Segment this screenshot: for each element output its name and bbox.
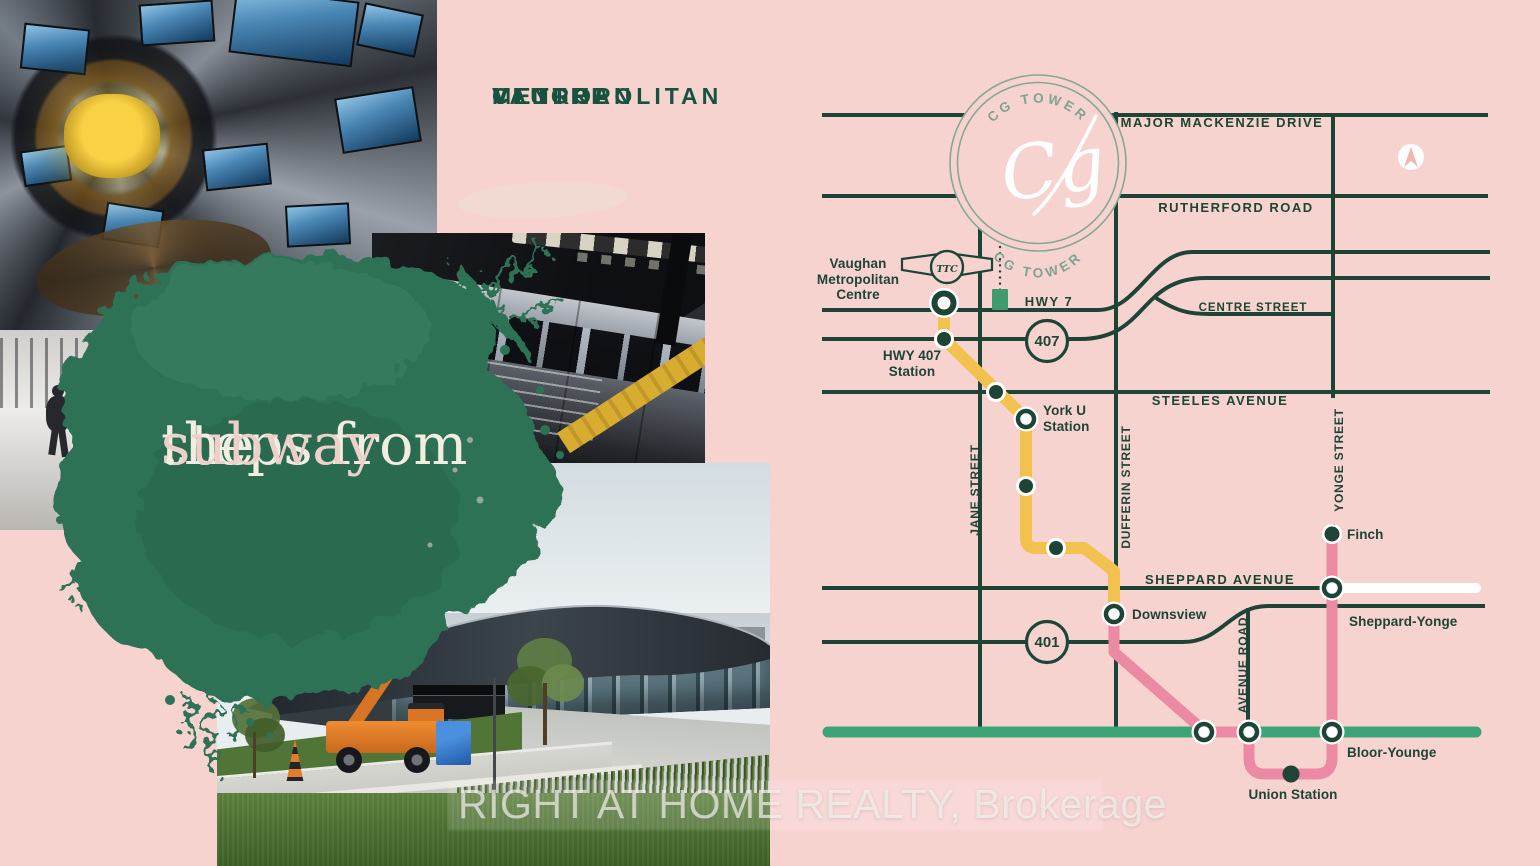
label-bloor-younge: Bloor-Younge bbox=[1347, 745, 1437, 760]
label-hwy7: HWY 7 bbox=[1025, 294, 1073, 309]
station-hwy407-dot bbox=[937, 332, 951, 346]
road-lines bbox=[822, 112, 1490, 733]
brokerage-watermark: RIGHT AT HOME REALTY, Brokerage bbox=[458, 781, 1167, 828]
station-vmc-ring bbox=[935, 294, 954, 313]
badge-monogram-script: Cg bbox=[995, 119, 1110, 219]
north-arrow-icon bbox=[1398, 144, 1424, 170]
station-dot bbox=[1049, 541, 1063, 555]
label-finch: Finch bbox=[1347, 527, 1384, 542]
subway-line-yonge-university-pink bbox=[1114, 534, 1332, 774]
cg-tower-badge: CG TOWER CG TOWER Cg bbox=[950, 75, 1126, 281]
transit-map: TTC CG TOWER CG TOWER Cg 407 401 MAJOR M… bbox=[0, 0, 1540, 866]
label-vmc-3: Centre bbox=[836, 287, 880, 302]
station-spadina-ring bbox=[1241, 724, 1257, 740]
badge-arc-bottom-text: CG TOWER bbox=[991, 248, 1086, 280]
label-rutherford: RUTHERFORD ROAD bbox=[1158, 200, 1313, 215]
label-steeles: STEELES AVENUE bbox=[1152, 393, 1289, 408]
station-downsview-ring bbox=[1106, 606, 1122, 622]
label-union-station: Union Station bbox=[1248, 787, 1337, 802]
label-avenue-road: AVENUE ROAD bbox=[1236, 617, 1250, 714]
station-york-u-ring bbox=[1018, 411, 1034, 427]
label-yonge-street: YONGE STREET bbox=[1332, 408, 1346, 512]
badge-arc-bottom-textpath: CG TOWER bbox=[991, 248, 1086, 280]
label-sheppard-yonge: Sheppard-Yonge bbox=[1349, 614, 1458, 629]
label-hwy407-station-2: Station bbox=[889, 364, 935, 379]
label-dufferin-street: DUFFERIN STREET bbox=[1119, 425, 1133, 548]
hwy-407-shield-label: 407 bbox=[1034, 333, 1059, 350]
station-finch-west-dot bbox=[1019, 479, 1033, 493]
ttc-logo-monogram: TTC bbox=[936, 264, 958, 275]
label-centre-street: CENTRE STREET bbox=[1199, 302, 1308, 314]
hwy-401-shield-label: 401 bbox=[1034, 634, 1059, 651]
label-downsview: Downsview bbox=[1132, 607, 1207, 622]
station-dots bbox=[934, 329, 1066, 558]
station-st-george-ring bbox=[1196, 724, 1212, 740]
label-hwy407-station-1: HWY 407 bbox=[883, 348, 941, 363]
pink-segment-union-loop bbox=[1249, 534, 1332, 774]
station-markers bbox=[929, 288, 1345, 783]
station-union-dot bbox=[1283, 766, 1300, 783]
station-steeles-west-dot bbox=[989, 385, 1003, 399]
label-york-u-1: York U bbox=[1043, 403, 1086, 418]
station-sheppard-yonge-ring bbox=[1324, 580, 1340, 596]
label-york-u-2: Station bbox=[1043, 419, 1089, 434]
pink-segment-downsview bbox=[1114, 610, 1203, 730]
label-jane-street: JANE STREET bbox=[968, 444, 982, 535]
label-sheppard: SHEPPARD AVENUE bbox=[1145, 572, 1295, 587]
station-finch-dot bbox=[1325, 527, 1340, 542]
label-vmc-2: Metropolitan bbox=[817, 272, 899, 287]
poster-canvas: steps from the subway. VAUGHAN METROPOLI… bbox=[0, 0, 1540, 866]
label-vmc-1: Vaughan bbox=[830, 256, 887, 271]
cg-tower-site-marker bbox=[992, 289, 1008, 310]
label-major-mackenzie: MAJOR MACKENZIE DRIVE bbox=[1121, 115, 1324, 130]
station-bloor-yonge-ring bbox=[1324, 724, 1340, 740]
